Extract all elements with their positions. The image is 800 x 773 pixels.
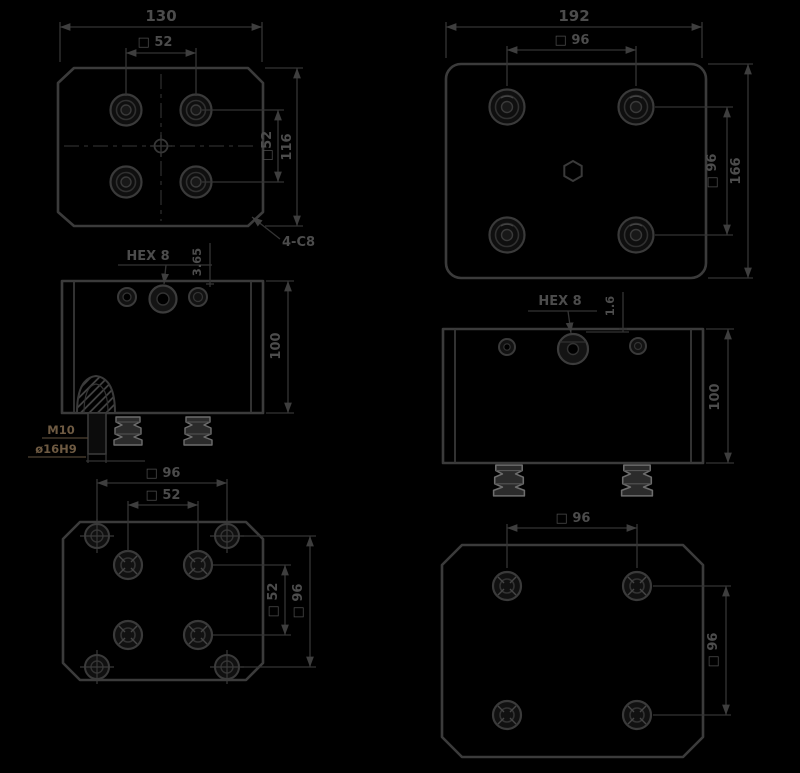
- plan-view-large: 192 □ 96 □ 96 166: [446, 7, 753, 278]
- dim-flange-height-label: 1.6: [603, 296, 617, 316]
- corner-hole: [623, 572, 651, 600]
- callout-thread: M10: [42, 423, 88, 438]
- callout-hex-label: HEX 8: [126, 249, 169, 264]
- dim-bolt-square-top-label: □ 96: [555, 33, 590, 48]
- callout-chamfer-label: 4-C8: [282, 235, 315, 250]
- rubber-foot: [494, 465, 525, 496]
- dim-inner-square-top-label: □ 52: [146, 488, 181, 503]
- corner-hole: [210, 519, 244, 553]
- dim-overall-width-label: 130: [145, 7, 176, 25]
- dim-outer-square-right-label: □ 96: [706, 633, 721, 668]
- stud-nut-left: [118, 288, 136, 306]
- stud-nut-left: [499, 339, 515, 355]
- rubber-foot: [622, 465, 653, 496]
- plate-outline: [446, 64, 706, 278]
- front-view-small: HEX 8 3.65 100 M10: [28, 243, 294, 463]
- dim-inner-square-right-label: □ 52: [266, 583, 281, 618]
- center-nut: [150, 286, 177, 313]
- dim-bolt-square-top: □ 96: [507, 33, 636, 86]
- bushing-section: [77, 376, 115, 454]
- dim-overall-height-label: 116: [280, 133, 295, 160]
- corner-hole: [493, 701, 521, 729]
- stud-nut-right: [189, 288, 207, 306]
- dim-bolt-square-right-label: □52: [260, 131, 275, 161]
- dim-bolt-square-right: □ 96: [655, 107, 733, 235]
- dim-outer-square-top-label: □ 96: [146, 466, 181, 481]
- center-mark: [150, 135, 172, 157]
- callout-bore-label: ø16H9: [35, 442, 77, 456]
- dim-inner-square-right: □ 52: [213, 565, 291, 635]
- corner-hole: [623, 701, 651, 729]
- technical-drawing: 130 □ 52 □52 116 4-C8: [0, 0, 800, 773]
- plate-outline: [442, 545, 703, 757]
- center-hex-hole: [564, 161, 581, 181]
- front-view-large: HEX 8 1.6 100: [443, 292, 734, 496]
- callout-hex-label: HEX 8: [538, 294, 581, 309]
- callout-chamfer: 4-C8: [252, 217, 315, 250]
- drawing-canvas: 130 □ 52 □52 116 4-C8: [0, 0, 800, 773]
- bolt-hole: [111, 95, 142, 126]
- callout-thread-label: M10: [47, 423, 74, 437]
- callout-hex: HEX 8: [118, 249, 197, 284]
- stud-section: [88, 413, 106, 454]
- dim-body-height-label: 100: [708, 383, 723, 410]
- callout-hex: HEX 8: [528, 294, 597, 333]
- plan-view-small: 130 □ 52 □52 116 4-C8: [58, 7, 315, 250]
- inner-hole: [114, 621, 142, 649]
- dim-bolt-square-top-label: □ 52: [138, 35, 173, 50]
- bolt-hole: [490, 218, 525, 253]
- bottom-view-large: □ 96 □ 96: [442, 511, 731, 757]
- dim-body-height: 100: [266, 281, 294, 413]
- inner-hole: [184, 621, 212, 649]
- bolt-hole: [619, 90, 654, 125]
- dim-body-height-label: 100: [269, 332, 284, 359]
- stud-nut-right: [630, 338, 646, 354]
- dim-outer-square-top-label: □ 96: [556, 511, 591, 526]
- inner-hole: [184, 551, 212, 579]
- corner-hole: [493, 572, 521, 600]
- rubber-foot: [114, 417, 142, 445]
- dim-outer-square-top: □ 96: [507, 511, 637, 568]
- dim-overall-height-label: 166: [729, 157, 744, 184]
- dim-outer-square-right: □ 96: [653, 586, 731, 715]
- dim-outer-square-right-label: □ 96: [291, 584, 306, 619]
- center-nut: [558, 334, 588, 364]
- bolt-hole: [490, 90, 525, 125]
- bolt-hole: [111, 167, 142, 198]
- dim-inner-square-top: □ 52: [128, 488, 198, 551]
- dim-body-height: 100: [706, 329, 734, 463]
- dim-overall-width-label: 192: [558, 7, 589, 25]
- dim-bolt-square-right-label: □ 96: [705, 154, 720, 189]
- bolt-hole: [619, 218, 654, 253]
- inner-hole: [114, 551, 142, 579]
- bottom-view-small: □ 96 □ 52 □ 52 □ 96: [63, 466, 316, 684]
- dim-flange-height: 1.6: [586, 292, 629, 332]
- rubber-foot: [184, 417, 212, 445]
- corner-hole: [80, 519, 114, 553]
- dim-flange-height-label: 3.65: [190, 248, 204, 276]
